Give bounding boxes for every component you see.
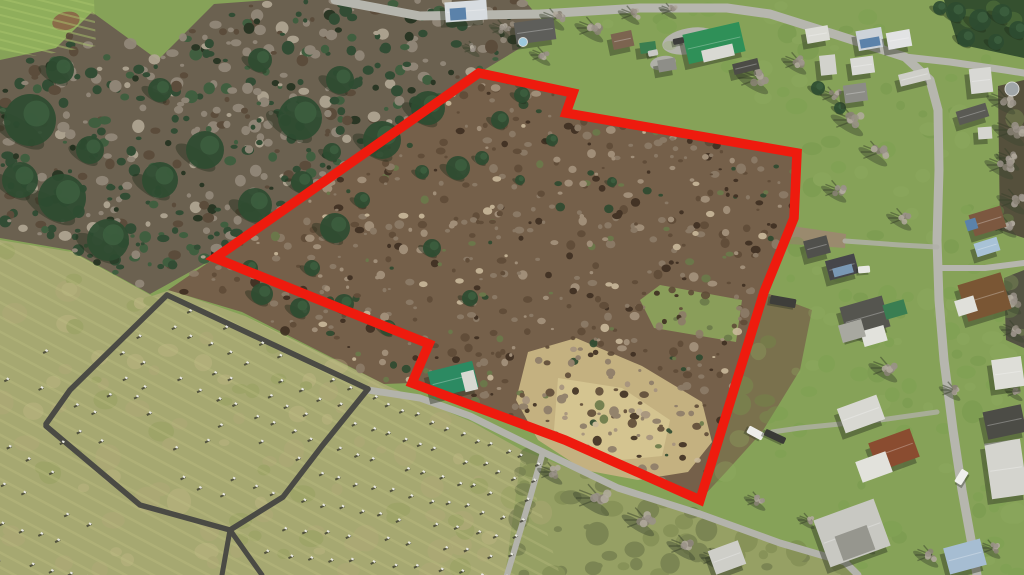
texture-dot [337,177,344,183]
texture-dot [524,315,527,318]
texture-dot [614,428,618,432]
texture-dot [606,240,616,248]
texture-dot [290,322,297,328]
conifer-highlight [519,176,524,181]
texture-dot [646,435,653,440]
texture-dot [452,358,459,363]
texture-dot [303,218,310,226]
texture-dot [751,246,761,254]
texture-dot [654,388,658,392]
texture-dot [945,74,957,82]
texture-dot [355,227,365,234]
texture-dot [628,419,637,428]
texture-dot [189,29,196,33]
texture-dot [607,236,614,241]
texture-dot [179,232,188,238]
texture-dot [399,154,402,157]
tree-canopy [808,520,812,524]
aerial-scene-svg [0,0,1024,575]
texture-dot [269,187,273,190]
texture-dot [605,359,611,365]
texture-dot [227,113,232,117]
texture-dot [434,169,437,172]
texture-dot [595,296,601,303]
texture-dot [355,50,365,61]
texture-dot [63,141,67,144]
texture-dot [418,154,425,159]
texture-dot [672,443,676,446]
texture-dot [59,98,69,108]
texture-dot [770,223,777,228]
texture-dot [139,231,151,243]
texture-dot [171,128,178,134]
texture-dot [456,128,465,134]
texture-dot [774,1,787,10]
texture-dot [189,270,199,276]
conifer-highlight [455,159,467,171]
texture-dot [78,173,88,180]
texture-dot [524,328,531,335]
texture-dot [706,211,714,217]
texture-dot [696,196,701,202]
texture-dot [271,51,277,55]
texture-dot [306,152,316,162]
texture-dot [631,436,638,441]
texture-dot [489,220,496,224]
texture-dot [342,135,351,143]
texture-dot [604,313,612,321]
texture-dot [72,248,78,252]
texture-dot [544,360,551,365]
texture-dot [683,371,692,378]
texture-dot [483,123,488,128]
texture-dot [652,419,661,424]
building-roof [819,54,837,76]
conifer-highlight [1000,7,1010,17]
tree-canopy [636,15,641,20]
texture-dot [405,279,414,286]
texture-dot [478,84,485,92]
texture-dot [262,1,272,8]
tree-canopy [544,51,549,56]
texture-dot [682,277,687,280]
tree-canopy [556,14,562,20]
conifer-highlight [977,12,988,23]
texture-dot [272,80,279,86]
texture-dot [644,143,652,150]
conifer-highlight [480,153,487,160]
texture-dot [637,179,643,184]
texture-dot [821,136,841,148]
texture-dot [93,85,102,94]
texture-dot [148,262,152,266]
texture-dot [642,160,647,164]
texture-dot [86,93,91,98]
texture-dot [387,244,391,248]
texture-dot [402,365,411,373]
texture-dot [724,335,733,342]
texture-dot [346,189,350,193]
texture-dot [537,318,546,324]
texture-dot [682,244,686,247]
texture-dot [595,173,599,176]
tree-canopy [898,215,904,221]
texture-dot [808,306,825,319]
texture-dot [280,73,288,78]
texture-dot [403,62,411,67]
texture-dot [587,293,594,298]
texture-dot [669,166,675,170]
texture-dot [192,94,198,100]
texture-dot [385,224,392,230]
texture-dot [658,194,663,197]
texture-dot [157,235,169,242]
texture-dot [304,45,315,55]
texture-dot [542,221,545,225]
texture-dot [592,422,598,428]
texture-dot [373,259,377,263]
texture-dot [483,137,493,143]
texture-dot [902,398,913,409]
texture-dot [327,165,332,169]
texture-dot [638,401,643,405]
texture-dot [574,124,581,131]
texture-dot [254,25,266,35]
texture-dot [564,412,567,415]
texture-dot [219,439,230,446]
conifer-highlight [420,167,427,174]
texture-dot [630,558,642,570]
texture-dot [599,302,609,309]
texture-dot [602,237,608,241]
texture-dot [213,58,221,64]
texture-dot [257,133,265,141]
texture-dot [512,403,519,410]
texture-dot [745,241,753,246]
texture-dot [117,158,126,166]
texture-dot [694,458,701,463]
texture-dot [219,287,227,293]
texture-dot [707,325,713,330]
texture-dot [444,156,447,159]
texture-dot [75,229,81,233]
texture-dot [149,201,158,209]
texture-dot [223,121,230,128]
texture-dot [245,114,250,119]
texture-dot [48,85,61,95]
texture-dot [754,394,775,407]
texture-dot [124,38,137,49]
texture-dot [214,231,220,236]
texture-dot [721,238,730,248]
texture-dot [105,159,115,170]
texture-dot [249,5,253,8]
texture-dot [562,416,568,420]
texture-dot [722,341,727,346]
texture-dot [679,210,684,214]
texture-dot [658,217,666,223]
texture-dot [513,211,521,217]
texture-dot [523,296,532,303]
texture-dot [418,221,427,228]
texture-dot [700,221,709,229]
texture-dot [442,249,446,252]
texture-dot [690,145,697,150]
texture-dot [786,274,795,282]
texture-dot [696,330,704,339]
texture-dot [490,393,493,396]
building-house-topleft-blue-wall [450,7,467,20]
texture-dot [487,375,493,381]
texture-dot [135,280,144,288]
texture-dot [682,382,691,390]
texture-dot [564,180,572,187]
texture-dot [107,197,112,200]
texture-dot [689,272,699,281]
texture-dot [818,355,835,373]
texture-dot [725,187,729,191]
texture-dot [703,404,707,407]
texture-dot [272,255,280,261]
texture-dot [676,411,685,417]
texture-dot [293,18,299,24]
texture-dot [353,525,379,552]
texture-dot [536,109,542,113]
texture-dot [149,54,161,64]
tree-canopy [952,385,957,390]
tree-canopy [1007,225,1013,231]
texture-dot [673,244,681,250]
conifer-highlight [468,292,476,300]
texture-dot [655,444,662,448]
texture-dot [982,331,1003,345]
texture-dot [385,256,391,262]
texture-dot [379,45,386,52]
texture-dot [99,211,104,215]
texture-dot [606,369,615,378]
texture-dot [350,222,359,228]
texture-dot [567,304,572,308]
texture-dot [763,190,768,194]
texture-dot [668,217,674,223]
texture-dot [722,256,726,259]
texture-dot [485,147,488,149]
texture-dot [662,265,671,273]
texture-dot [256,140,263,145]
tree-canopy [681,542,688,549]
texture-dot [970,356,986,366]
texture-dot [97,128,106,136]
texture-dot [694,404,699,408]
texture-dot [413,318,418,322]
texture-dot [120,94,129,101]
texture-dot [459,91,468,99]
conifer-highlight [257,51,269,63]
texture-dot [521,124,525,128]
texture-dot [566,240,575,250]
texture-dot [106,185,115,191]
texture-dot [112,270,119,275]
texture-dot [605,282,612,286]
texture-dot [570,347,577,352]
texture-dot [139,105,146,112]
texture-dot [643,187,652,194]
texture-dot [234,216,242,225]
texture-dot [593,350,599,355]
texture-dot [180,72,188,78]
texture-dot [630,312,640,320]
texture-dot [497,335,504,342]
texture-dot [418,30,427,37]
texture-dot [368,112,381,123]
texture-dot [251,125,256,130]
texture-dot [642,292,647,295]
tree-canopy [549,472,555,478]
building-roof [978,127,993,140]
texture-dot [484,391,488,394]
texture-dot [880,83,892,95]
texture-dot [179,33,187,41]
texture-dot [143,72,151,77]
texture-dot [7,219,11,222]
texture-dot [109,80,121,92]
texture-dot [606,126,616,134]
texture-dot [618,183,624,187]
texture-dot [439,139,448,146]
texture-dot [746,288,754,294]
conifer-highlight [87,140,101,154]
texture-dot [257,102,262,106]
texture-dot [731,167,735,171]
texture-dot [370,228,377,235]
conifer-highlight [259,286,270,297]
texture-dot [298,88,309,95]
texture-dot [663,524,679,537]
texture-dot [180,64,184,67]
texture-dot [885,387,900,402]
texture-dot [916,169,931,183]
texture-dot [132,120,144,133]
texture-dot [701,196,710,203]
texture-dot [609,327,614,330]
texture-dot [278,83,283,86]
texture-dot [491,352,494,355]
texture-dot [620,391,629,398]
texture-dot [199,201,209,210]
texture-dot [455,278,464,283]
texture-dot [171,81,182,92]
texture-dot [858,9,877,25]
texture-dot [423,59,429,63]
texture-dot [372,85,379,91]
texture-dot [318,274,323,278]
texture-dot [514,227,524,234]
texture-dot [697,363,702,367]
texture-dot [650,463,658,470]
texture-dot [791,368,800,376]
texture-dot [574,276,580,280]
texture-dot [326,331,334,336]
texture-dot [684,156,687,159]
texture-dot [665,454,668,457]
tree-canopy [754,495,759,500]
texture-dot [154,65,158,70]
texture-dot [531,91,541,97]
texture-dot [461,220,467,225]
texture-dot [229,13,236,17]
texture-dot [670,137,675,140]
texture-dot [558,192,563,195]
texture-dot [513,149,522,155]
texture-dot [700,298,710,306]
texture-dot [618,562,630,570]
texture-dot [338,256,341,258]
texture-dot [679,307,683,310]
texture-dot [337,107,345,115]
texture-dot [500,349,505,355]
texture-dot [492,147,496,151]
texture-dot [533,403,537,407]
texture-dot [629,408,635,413]
texture-dot [850,367,869,382]
texture-dot [566,252,573,259]
texture-dot [608,446,617,453]
texture-dot [190,202,202,214]
texture-dot [57,122,69,132]
tree-canopy [648,517,656,525]
texture-dot [342,116,353,126]
texture-dot [592,129,600,136]
texture-dot [669,347,678,356]
texture-dot [687,367,691,371]
texture-dot [738,317,742,321]
texture-dot [305,235,315,242]
texture-dot [497,257,507,263]
texture-dot [755,200,763,205]
texture-dot [334,336,340,340]
tree-canopy [799,60,805,66]
texture-dot [551,328,554,330]
texture-dot [734,295,739,300]
texture-dot [529,314,533,317]
texture-dot [347,34,356,42]
texture-dot [972,503,986,518]
texture-dot [554,181,562,186]
tree-canopy [550,466,556,472]
texture-dot [460,333,469,341]
conifer-highlight [103,224,124,245]
texture-dot [330,97,340,105]
texture-dot [356,364,365,374]
texture-dot [487,92,491,95]
texture-dot [524,142,532,147]
texture-dot [526,120,531,123]
texture-dot [136,243,140,247]
texture-dot [390,267,394,270]
texture-dot [504,254,507,257]
texture-dot [440,196,449,204]
tree-canopy [555,465,561,471]
texture-dot [136,137,142,141]
tree-canopy [590,494,598,502]
texture-dot [353,244,358,248]
texture-dot [802,142,822,155]
texture-dot [122,182,132,190]
texture-dot [193,215,203,222]
tree-canopy [600,495,608,503]
tree-canopy [1006,160,1013,167]
texture-dot [902,378,917,394]
